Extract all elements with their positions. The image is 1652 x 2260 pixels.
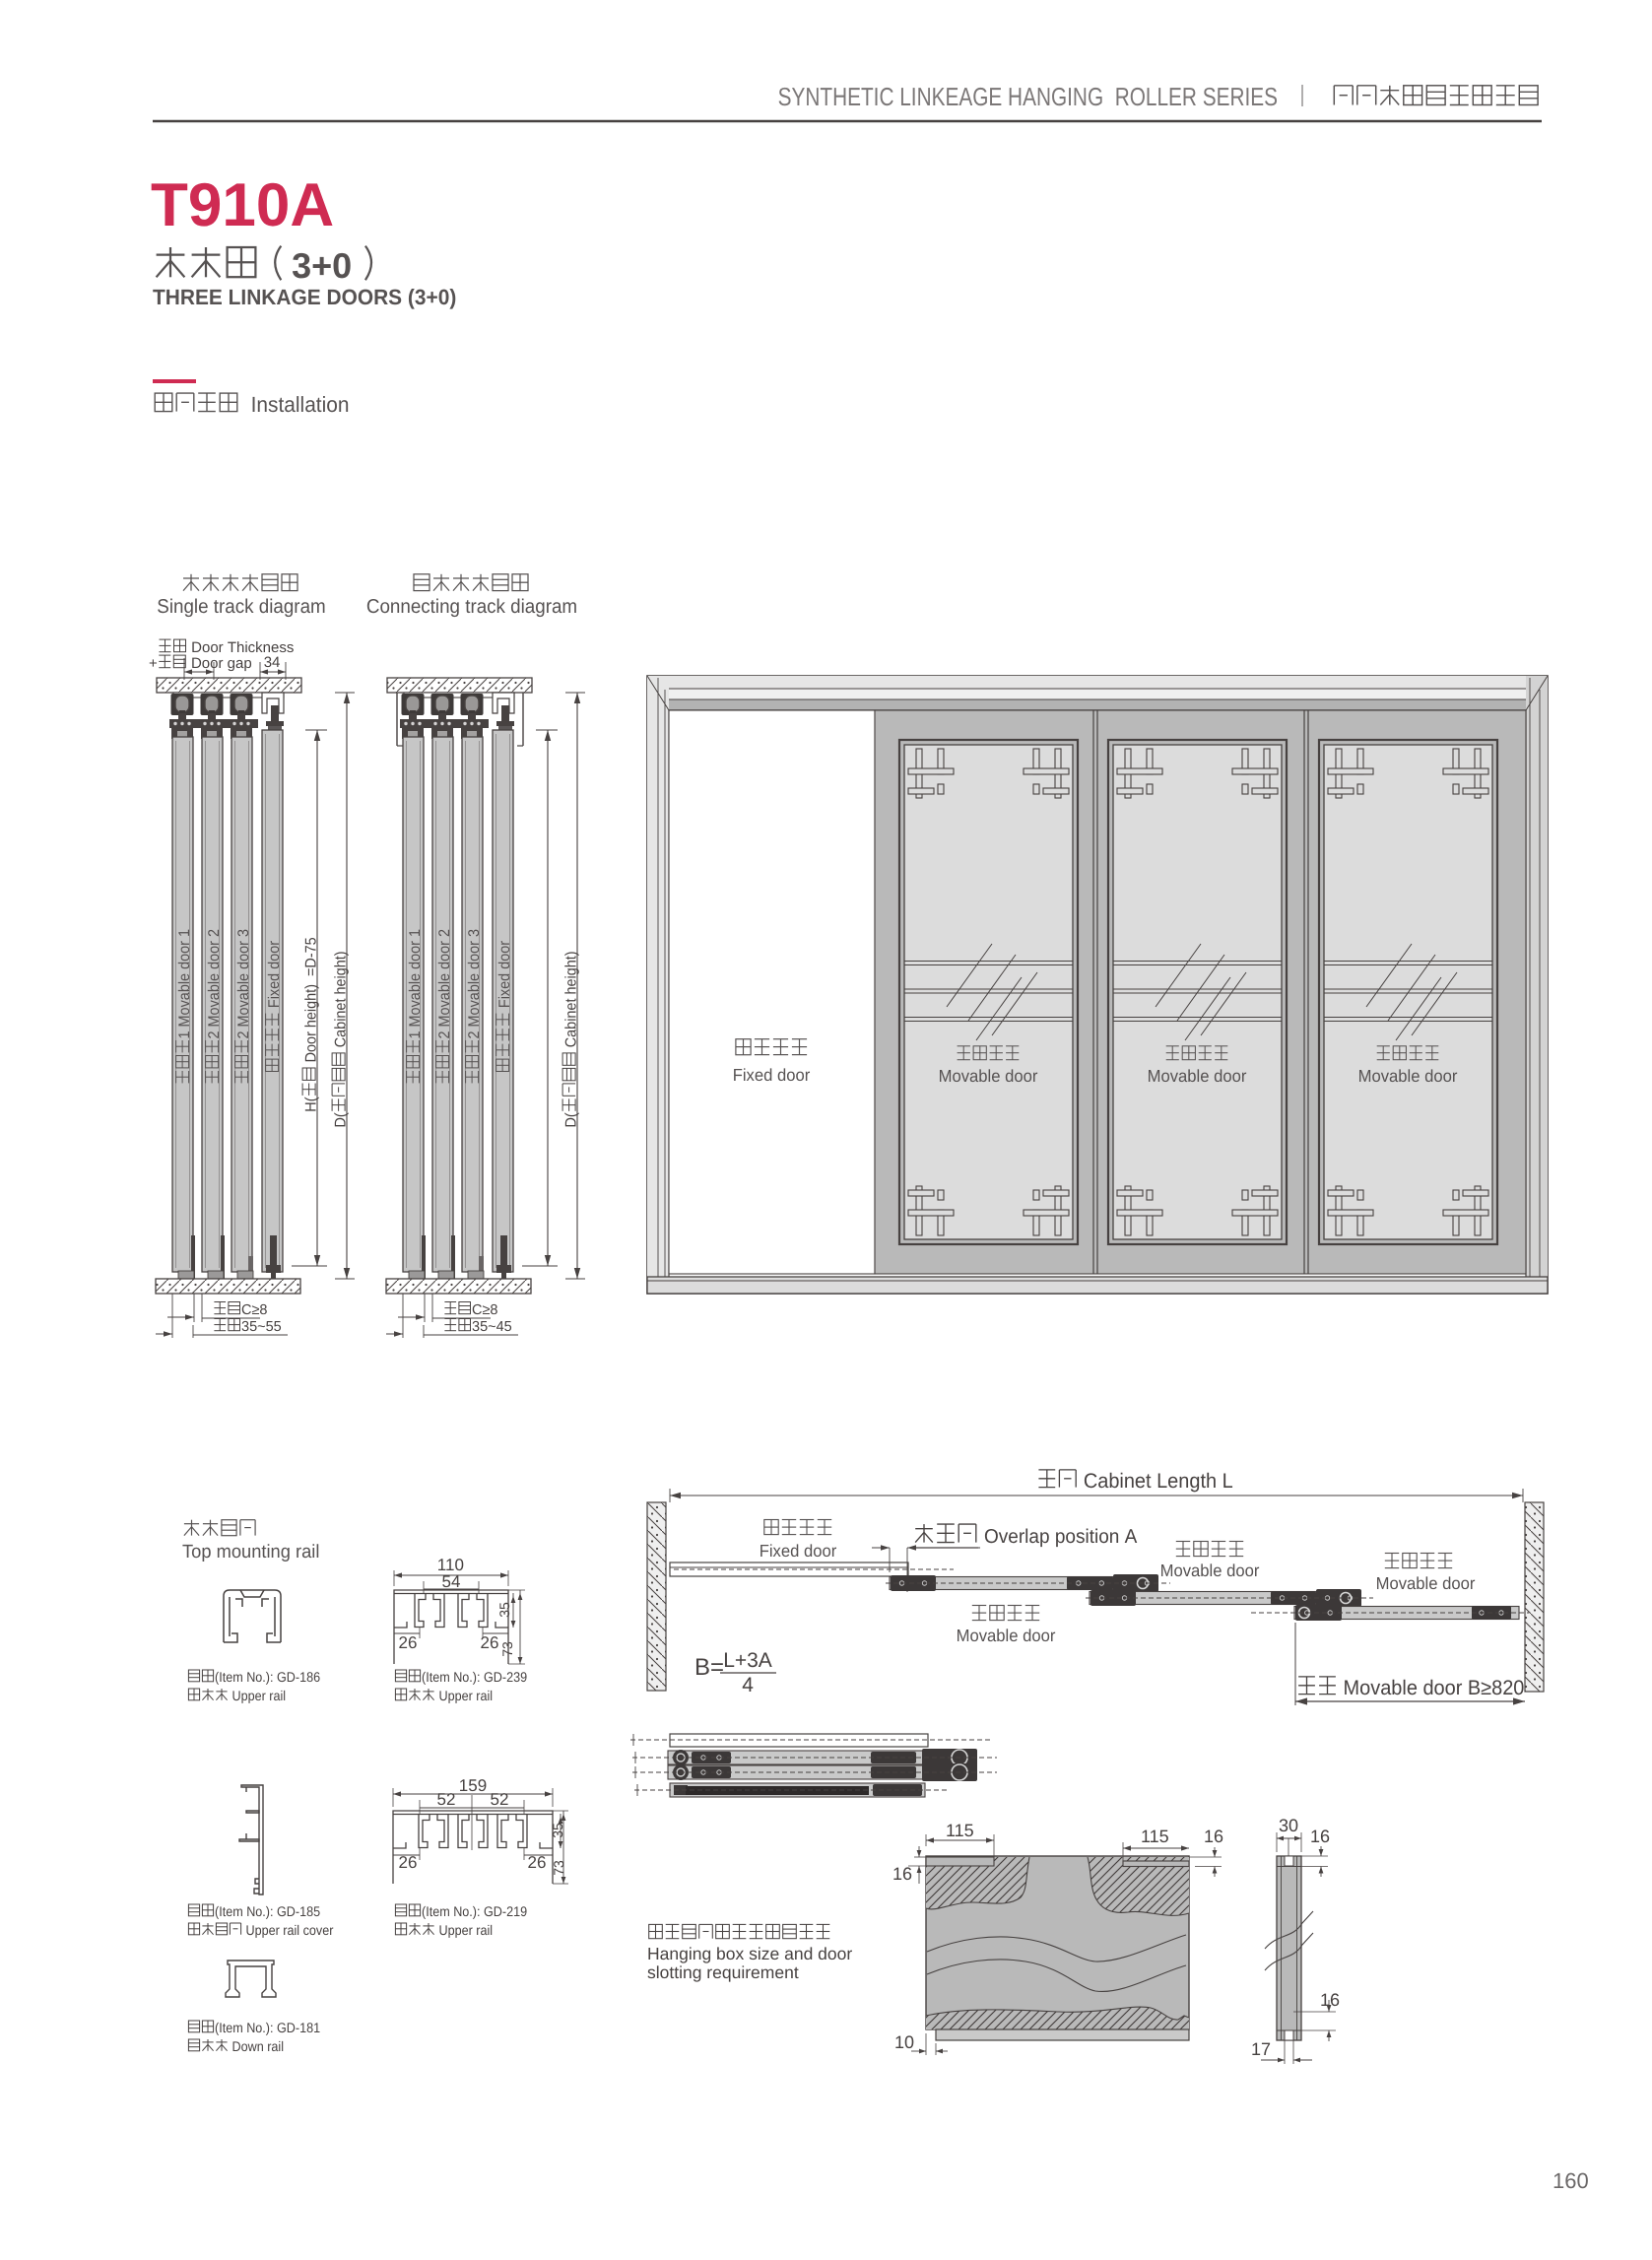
svg-text:Movable door B≥820: Movable door B≥820 (1338, 1677, 1524, 1699)
svg-text:Movable door: Movable door (957, 1626, 1056, 1645)
svg-text:C≥8: C≥8 (241, 1302, 268, 1318)
svg-text:Fixed door: Fixed door (733, 1065, 811, 1085)
svg-text:Door height) =D-75: Door height) =D-75 (302, 937, 319, 1066)
svg-text:Cabinet height): Cabinet height) (332, 951, 349, 1051)
svg-text:2 Movable door 3: 2 Movable door 3 (235, 929, 252, 1039)
svg-text:Door gap: Door gap (187, 655, 252, 672)
svg-text:26: 26 (399, 1633, 418, 1652)
svg-text:B=: B= (694, 1654, 724, 1681)
svg-text:2 Movable door 2: 2 Movable door 2 (436, 929, 453, 1039)
svg-text:10: 10 (894, 2032, 914, 2052)
svg-text:D(: D( (562, 1112, 579, 1128)
svg-text:Fixed door: Fixed door (266, 941, 283, 1012)
svg-text:Cabinet Length L: Cabinet Length L (1078, 1470, 1232, 1493)
svg-text:115: 115 (946, 1821, 974, 1840)
svg-text:T910A: T910A (151, 171, 334, 239)
svg-text:Single track diagram: Single track diagram (157, 596, 325, 618)
svg-text:35~55: 35~55 (241, 1319, 282, 1335)
svg-text:THREE LINKAGE DOORS (3+0): THREE LINKAGE DOORS (3+0) (153, 285, 456, 309)
svg-text:73: 73 (499, 1641, 515, 1657)
svg-text:Movable door: Movable door (1358, 1066, 1458, 1086)
svg-text:16: 16 (1310, 1827, 1330, 1846)
svg-text:Upper rail: Upper rail (435, 1688, 493, 1703)
svg-text:16: 16 (892, 1864, 912, 1884)
svg-text:17: 17 (1251, 2039, 1271, 2059)
svg-text:Installation: Installation (239, 392, 350, 417)
svg-text:54: 54 (442, 1572, 461, 1591)
svg-text:D(: D( (332, 1112, 349, 1128)
svg-text:(Item No.): GD-185: (Item No.): GD-185 (215, 1903, 320, 1919)
svg-text:Upper rail: Upper rail (435, 1922, 493, 1938)
svg-text:L+3A: L+3A (723, 1649, 772, 1672)
svg-text:Upper rail: Upper rail (229, 1688, 286, 1703)
svg-text:+: + (149, 655, 158, 672)
svg-text:2 Movable door 2: 2 Movable door 2 (206, 929, 223, 1039)
svg-text:Fixed door: Fixed door (496, 941, 513, 1012)
svg-text:16: 16 (1204, 1827, 1223, 1846)
svg-text:35: 35 (550, 1823, 565, 1838)
svg-text:159: 159 (459, 1776, 487, 1795)
svg-text:Upper rail cover: Upper rail cover (242, 1922, 334, 1938)
svg-text:Cabinet height): Cabinet height) (562, 951, 579, 1051)
svg-text:SYNTHETIC LINKEAGE HANGING RO: SYNTHETIC LINKEAGE HANGING ROLLER SERIES (778, 82, 1278, 111)
svg-text:35: 35 (496, 1602, 512, 1618)
svg-text:1 Movable door 1: 1 Movable door 1 (407, 929, 424, 1039)
svg-text:Connecting track diagram: Connecting track diagram (366, 596, 577, 618)
svg-text:H(: H( (302, 1097, 319, 1112)
svg-text:(Item No.): GD-239: (Item No.): GD-239 (422, 1669, 527, 1685)
svg-text:Movable door: Movable door (939, 1066, 1038, 1086)
svg-text:73: 73 (551, 1860, 566, 1876)
svg-text:26: 26 (528, 1853, 547, 1872)
svg-text:30: 30 (1279, 1816, 1298, 1835)
svg-text:34: 34 (264, 654, 281, 671)
svg-text:Top mounting rail: Top mounting rail (182, 1542, 319, 1562)
svg-text:115: 115 (1141, 1827, 1169, 1846)
svg-text:(Item No.): GD-181: (Item No.): GD-181 (215, 2020, 320, 2035)
svg-text:(Item No.): GD-219: (Item No.): GD-219 (422, 1903, 527, 1919)
svg-text:Fixed door: Fixed door (760, 1541, 837, 1561)
svg-text:Down rail: Down rail (229, 2038, 284, 2054)
svg-text:26: 26 (399, 1853, 418, 1872)
svg-text:(Item No.): GD-186: (Item No.): GD-186 (215, 1669, 320, 1685)
svg-text:4: 4 (742, 1674, 754, 1696)
svg-text:C≥8: C≥8 (472, 1302, 498, 1318)
svg-text:52: 52 (491, 1790, 509, 1809)
svg-text:160: 160 (1553, 2168, 1589, 2193)
svg-text:Overlap position A: Overlap position A (984, 1526, 1138, 1548)
svg-text:slotting requirement: slotting requirement (647, 1962, 799, 1982)
svg-text:Movable door: Movable door (1148, 1066, 1247, 1086)
svg-text:52: 52 (437, 1790, 456, 1809)
svg-text:Movable door: Movable door (1160, 1561, 1260, 1580)
svg-text:Movable door: Movable door (1376, 1573, 1476, 1593)
svg-text:35~45: 35~45 (472, 1319, 512, 1335)
svg-text:Hanging box size and door: Hanging box size and door (647, 1944, 852, 1963)
svg-text:2 Movable door 3: 2 Movable door 3 (466, 929, 483, 1039)
svg-text:1 Movable door 1: 1 Movable door 1 (176, 929, 193, 1039)
svg-text:3+0: 3+0 (292, 245, 352, 286)
